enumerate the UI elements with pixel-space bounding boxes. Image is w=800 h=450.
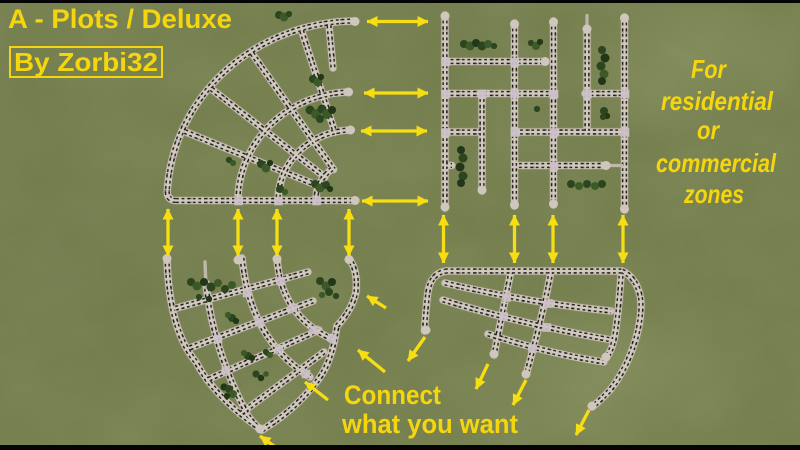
svg-text:zones: zones [683,179,744,209]
svg-text:Connect: Connect [344,380,441,410]
svg-text:residential: residential [661,86,774,116]
svg-text:A - Plots / Deluxe: A - Plots / Deluxe [8,4,232,34]
svg-text:For: For [691,54,728,84]
svg-text:By Zorbi32: By Zorbi32 [14,47,158,77]
svg-text:commercial: commercial [656,148,777,178]
svg-text:or: or [697,115,721,145]
svg-text:what you want: what you want [341,409,518,439]
